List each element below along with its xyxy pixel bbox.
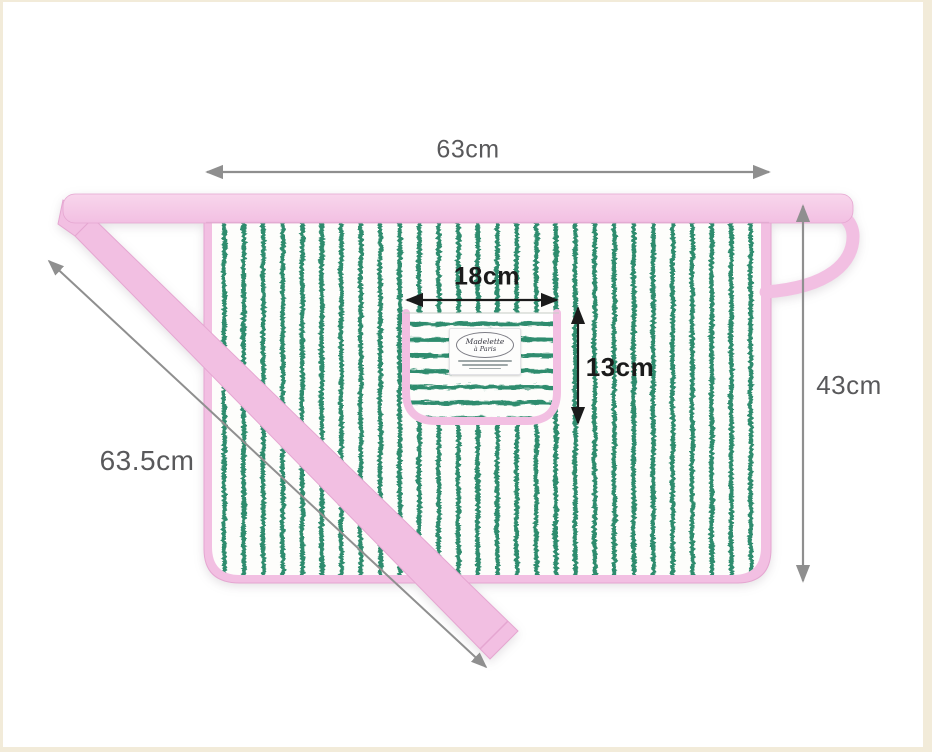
waistband (63, 194, 853, 223)
brand-label-fineprint (469, 368, 501, 370)
brand-label-line2: à Paris (474, 346, 496, 353)
dim-pocket-height-label: 13cm (586, 354, 655, 380)
brand-label-fineprint (462, 364, 508, 366)
brand-label-fineprint (458, 360, 512, 362)
dim-pocket-width-label: 18cm (454, 265, 520, 290)
pocket-brand-label: Madelette à Paris (449, 328, 521, 375)
apron-illustration (0, 0, 932, 752)
dim-tie-length-label: 63.5cm (100, 447, 195, 475)
dim-height-label: 43cm (816, 372, 882, 398)
product-dimension-image: 63cm 43cm 63.5cm 18cm 13cm Madelette à P… (0, 0, 932, 752)
dim-width-label: 63cm (436, 138, 499, 163)
brand-label-oval: Madelette à Paris (456, 332, 514, 358)
